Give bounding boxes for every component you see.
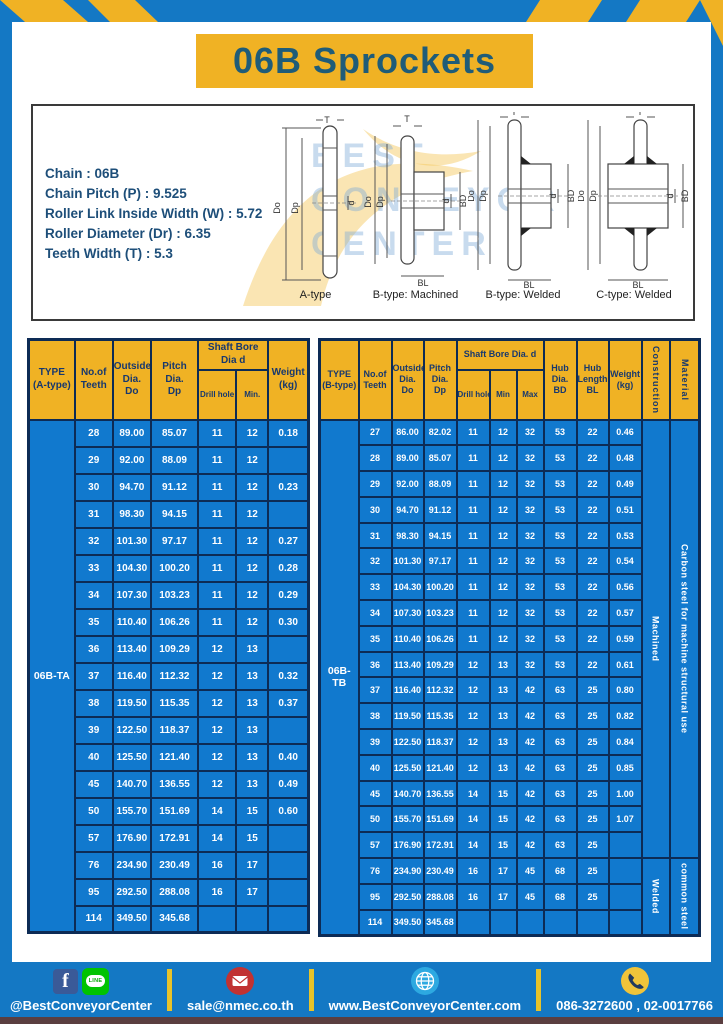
table-cell: 119.50 bbox=[392, 703, 424, 729]
table-cell: 39 bbox=[75, 717, 113, 744]
table-cell: 119.50 bbox=[113, 690, 151, 717]
table-cell: 22 bbox=[577, 600, 609, 626]
table-cell: 12 bbox=[236, 555, 268, 582]
catalog-page: 06B Sprockets BEST CONVEYOR CENTER Chain… bbox=[0, 0, 723, 1024]
table-cell: 101.30 bbox=[392, 548, 424, 574]
table-cell: 53 bbox=[544, 574, 577, 600]
table-cell: 234.90 bbox=[392, 858, 424, 884]
table-cell: 12 bbox=[490, 548, 517, 574]
table-cell: 172.91 bbox=[424, 832, 457, 858]
col-header-pitch-dia: PitchDia.Dp bbox=[424, 340, 457, 420]
table-cell: 172.91 bbox=[151, 825, 198, 852]
table-cell: 29 bbox=[75, 447, 113, 474]
table-cell: 12 bbox=[198, 636, 236, 663]
material-cell: common steel bbox=[670, 858, 700, 935]
table-cell: 92.00 bbox=[113, 447, 151, 474]
table-cell: 16 bbox=[457, 858, 490, 884]
table-cell: 122.50 bbox=[113, 717, 151, 744]
table-cell: 45 bbox=[75, 771, 113, 798]
col-header-outside-dia: OutsideDia.Do bbox=[392, 340, 424, 420]
table-cell: 45 bbox=[517, 858, 544, 884]
table-cell: 95 bbox=[359, 884, 392, 910]
table-cell: 42 bbox=[517, 729, 544, 755]
table-cell: 17 bbox=[490, 884, 517, 910]
table-cell: 12 bbox=[236, 474, 268, 501]
table-cell: 14 bbox=[198, 825, 236, 852]
svg-text:d: d bbox=[346, 200, 356, 205]
table-cell: 88.09 bbox=[424, 471, 457, 497]
spec-line: Chain Pitch (P) : 9.525 bbox=[45, 184, 262, 204]
table-cell: 0.54 bbox=[609, 548, 642, 574]
col-header-construction: Construction bbox=[642, 340, 670, 420]
table-cell: 14 bbox=[457, 806, 490, 832]
table-cell: 121.40 bbox=[151, 744, 198, 771]
table-cell: 0.23 bbox=[268, 474, 308, 501]
table-cell: 11 bbox=[457, 626, 490, 652]
facebook-icon[interactable]: f bbox=[53, 969, 78, 994]
table-cell: 349.50 bbox=[113, 906, 151, 933]
table-cell: 32 bbox=[517, 600, 544, 626]
table-cell: 53 bbox=[544, 445, 577, 471]
table-cell bbox=[198, 906, 236, 933]
table-cell: 12 bbox=[236, 420, 268, 447]
table-cell: 113.40 bbox=[392, 652, 424, 678]
table-cell: 11 bbox=[198, 528, 236, 555]
col-header-weight: Weight(kg) bbox=[268, 340, 308, 420]
table-cell: 32 bbox=[517, 445, 544, 471]
page-content: 06B Sprockets BEST CONVEYOR CENTER Chain… bbox=[12, 22, 711, 962]
table-cell: 12 bbox=[490, 420, 517, 446]
table-cell: 63 bbox=[544, 806, 577, 832]
email-address: sale@nmec.co.th bbox=[187, 998, 294, 1013]
svg-text:BL: BL bbox=[632, 280, 643, 288]
col-header-max: Max bbox=[517, 370, 544, 420]
table-cell: 34 bbox=[359, 600, 392, 626]
email-icon[interactable] bbox=[225, 966, 255, 996]
table-cell: 98.30 bbox=[392, 523, 424, 549]
table-cell: 32 bbox=[75, 528, 113, 555]
table-cell: 13 bbox=[490, 755, 517, 781]
table-cell: 22 bbox=[577, 548, 609, 574]
table-cell: 25 bbox=[577, 884, 609, 910]
table-cell: 76 bbox=[359, 858, 392, 884]
table-cell bbox=[268, 906, 308, 933]
table-cell: 155.70 bbox=[113, 798, 151, 825]
table-cell: 22 bbox=[577, 626, 609, 652]
table-cell: 63 bbox=[544, 677, 577, 703]
table-cell: 110.40 bbox=[113, 609, 151, 636]
table-cell: 86.00 bbox=[392, 420, 424, 446]
table-cell: 12 bbox=[198, 717, 236, 744]
table-cell: 14 bbox=[457, 832, 490, 858]
table-cell: 53 bbox=[544, 420, 577, 446]
table-cell: 112.32 bbox=[424, 677, 457, 703]
svg-text:Dp: Dp bbox=[290, 202, 300, 214]
table-cell bbox=[268, 825, 308, 852]
table-cell: 36 bbox=[359, 652, 392, 678]
table-cell: 11 bbox=[457, 600, 490, 626]
svg-text:BL: BL bbox=[523, 280, 534, 288]
table-cell: 12 bbox=[490, 600, 517, 626]
table-cell: 155.70 bbox=[392, 806, 424, 832]
table-cell: 38 bbox=[75, 690, 113, 717]
svg-text:T: T bbox=[511, 112, 517, 117]
figure-caption: B-type: Welded bbox=[468, 289, 578, 301]
table-cell: 34 bbox=[75, 582, 113, 609]
table-cell bbox=[268, 852, 308, 879]
svg-text:T: T bbox=[404, 114, 410, 124]
table-cell: 349.50 bbox=[392, 910, 424, 936]
table-cell: 42 bbox=[517, 781, 544, 807]
col-header-min: Min bbox=[490, 370, 517, 420]
table-cell: 0.60 bbox=[268, 798, 308, 825]
table-cell bbox=[609, 884, 642, 910]
a-type-table: TYPE(A-type) No.ofTeeth OutsideDia.Do Pi… bbox=[27, 338, 310, 934]
bottom-strip bbox=[0, 1017, 723, 1024]
table-cell: 11 bbox=[457, 548, 490, 574]
table-cell: 68 bbox=[544, 884, 577, 910]
col-header-teeth: No.ofTeeth bbox=[359, 340, 392, 420]
sprocket-c-type-welded-diagram: T Do Dp bbox=[578, 112, 690, 301]
table-cell: 94.15 bbox=[151, 501, 198, 528]
table-cell: 25 bbox=[577, 858, 609, 884]
table-cell: 12 bbox=[198, 663, 236, 690]
table-cell: 13 bbox=[236, 771, 268, 798]
table-cell: 37 bbox=[359, 677, 392, 703]
table-cell: 1.00 bbox=[609, 781, 642, 807]
table-cell: 40 bbox=[359, 755, 392, 781]
table-cell: 16 bbox=[198, 879, 236, 906]
table-cell: 125.50 bbox=[113, 744, 151, 771]
table-cell: 101.30 bbox=[113, 528, 151, 555]
table-cell: 92.00 bbox=[392, 471, 424, 497]
col-header-outside-dia: OutsideDia.Do bbox=[113, 340, 151, 420]
table-cell: 104.30 bbox=[113, 555, 151, 582]
svg-text:Dp: Dp bbox=[478, 190, 488, 202]
footer-social-section: f LINE @BestConveyorCenter bbox=[10, 966, 152, 1013]
svg-text:T: T bbox=[324, 115, 330, 125]
table-cell: 345.68 bbox=[151, 906, 198, 933]
table-cell: 12 bbox=[236, 447, 268, 474]
table-cell: 140.70 bbox=[113, 771, 151, 798]
globe-icon[interactable] bbox=[410, 966, 440, 996]
table-cell: 40 bbox=[75, 744, 113, 771]
table-cell bbox=[268, 879, 308, 906]
table-cell: 53 bbox=[544, 497, 577, 523]
table-cell: 32 bbox=[517, 574, 544, 600]
col-header-type: TYPE(B-type) bbox=[320, 340, 359, 420]
svg-text:BD: BD bbox=[566, 189, 576, 202]
social-handle: @BestConveyorCenter bbox=[10, 998, 152, 1013]
table-cell: 100.20 bbox=[424, 574, 457, 600]
table-cell: 22 bbox=[577, 497, 609, 523]
table-cell: 14 bbox=[457, 781, 490, 807]
spec-line: Chain : 06B bbox=[45, 164, 262, 184]
table-cell: 53 bbox=[544, 523, 577, 549]
table-row: 06B-TB2786.0082.0211123253220.46Machined… bbox=[320, 420, 700, 446]
table-cell: 118.37 bbox=[151, 717, 198, 744]
table-cell: 12 bbox=[490, 471, 517, 497]
table-cell: 13 bbox=[236, 744, 268, 771]
table-cell: 98.30 bbox=[113, 501, 151, 528]
table-cell: 22 bbox=[577, 420, 609, 446]
table-cell: 136.55 bbox=[151, 771, 198, 798]
table-cell: 0.80 bbox=[609, 677, 642, 703]
table-cell: 292.50 bbox=[392, 884, 424, 910]
table-cell: 12 bbox=[490, 574, 517, 600]
footer-divider bbox=[309, 969, 314, 1011]
table-cell bbox=[490, 910, 517, 936]
table-cell: 12 bbox=[457, 755, 490, 781]
table-cell: 57 bbox=[75, 825, 113, 852]
table-cell: 288.08 bbox=[424, 884, 457, 910]
table-cell: 32 bbox=[517, 548, 544, 574]
table-cell: 12 bbox=[198, 690, 236, 717]
b-type-table-body: 06B-TB2786.0082.0211123253220.46Machined… bbox=[320, 420, 700, 936]
table-cell: 50 bbox=[359, 806, 392, 832]
table-cell: 292.50 bbox=[113, 879, 151, 906]
sprocket-b-type-machined-diagram: T Do Dp d BD bbox=[363, 112, 468, 301]
table-cell: 0.29 bbox=[268, 582, 308, 609]
col-header-drill-hole: Drill hole bbox=[198, 370, 236, 420]
table-cell: 63 bbox=[544, 832, 577, 858]
table-cell: 15 bbox=[236, 798, 268, 825]
table-cell: 11 bbox=[198, 609, 236, 636]
table-cell: 53 bbox=[544, 471, 577, 497]
spec-line: Roller Diameter (Dr) : 6.35 bbox=[45, 224, 262, 244]
table-cell: 53 bbox=[544, 548, 577, 574]
col-header-shaft-bore: Shaft Bore Dia. d bbox=[457, 340, 544, 370]
table-cell: 12 bbox=[457, 652, 490, 678]
table-cell: 118.37 bbox=[424, 729, 457, 755]
phone-icon[interactable] bbox=[620, 966, 650, 996]
b-type-table: TYPE(B-type) No.ofTeeth OutsideDia.Do Pi… bbox=[318, 338, 701, 937]
table-cell: 13 bbox=[490, 652, 517, 678]
footer-divider bbox=[167, 969, 172, 1011]
table-cell: 63 bbox=[544, 729, 577, 755]
table-cell: 53 bbox=[544, 600, 577, 626]
table-cell: 11 bbox=[198, 501, 236, 528]
table-cell: 288.08 bbox=[151, 879, 198, 906]
table-cell: 22 bbox=[577, 471, 609, 497]
footer-website-section: www.BestConveyorCenter.com bbox=[329, 966, 521, 1013]
table-cell: 76 bbox=[75, 852, 113, 879]
table-cell bbox=[609, 858, 642, 884]
table-cell: 42 bbox=[517, 755, 544, 781]
svg-text:T: T bbox=[637, 112, 643, 117]
table-cell: 63 bbox=[544, 703, 577, 729]
table-cell: 100.20 bbox=[151, 555, 198, 582]
table-cell: 0.27 bbox=[268, 528, 308, 555]
table-cell: 13 bbox=[236, 636, 268, 663]
table-cell: 95 bbox=[75, 879, 113, 906]
table-cell: 345.68 bbox=[424, 910, 457, 936]
table-cell: 121.40 bbox=[424, 755, 457, 781]
table-cell: 11 bbox=[457, 523, 490, 549]
col-header-weight: Weight(kg) bbox=[609, 340, 642, 420]
table-cell: 136.55 bbox=[424, 781, 457, 807]
table-cell: 11 bbox=[198, 582, 236, 609]
table-cell bbox=[268, 717, 308, 744]
table-cell: 12 bbox=[198, 771, 236, 798]
table-cell: 37 bbox=[75, 663, 113, 690]
table-cell: 33 bbox=[75, 555, 113, 582]
footer-divider bbox=[536, 969, 541, 1011]
sprocket-figures: T Do Dp d bbox=[268, 112, 687, 317]
figure-caption: A-type bbox=[268, 289, 363, 301]
table-cell: 32 bbox=[517, 523, 544, 549]
svg-text:Do: Do bbox=[363, 196, 373, 208]
diagram-panel: BEST CONVEYOR CENTER Chain : 06B Chain P… bbox=[31, 104, 695, 321]
type-cell: 06B-TA bbox=[29, 420, 75, 933]
table-cell: 151.69 bbox=[424, 806, 457, 832]
table-cell: 151.69 bbox=[151, 798, 198, 825]
table-cell: 42 bbox=[517, 703, 544, 729]
svg-text:d: d bbox=[548, 193, 558, 198]
table-cell: 89.00 bbox=[392, 445, 424, 471]
spec-line: Teeth Width (T) : 5.3 bbox=[45, 244, 262, 264]
table-cell: 57 bbox=[359, 832, 392, 858]
construction-cell: Welded bbox=[642, 858, 670, 935]
table-row: 06B-TA2889.0085.0711120.18 bbox=[29, 420, 309, 447]
table-cell: 122.50 bbox=[392, 729, 424, 755]
table-cell: 94.70 bbox=[392, 497, 424, 523]
figure-caption: C-type: Welded bbox=[578, 289, 690, 301]
table-cell: 82.02 bbox=[424, 420, 457, 446]
table-cell: 32 bbox=[517, 471, 544, 497]
table-cell: 36 bbox=[75, 636, 113, 663]
material-cell: Carbon steel for machine structural use bbox=[670, 420, 700, 859]
table-cell: 25 bbox=[577, 832, 609, 858]
table-cell: 39 bbox=[359, 729, 392, 755]
table-cell bbox=[609, 910, 642, 936]
construction-cell: Machined bbox=[642, 420, 670, 859]
table-cell: 28 bbox=[75, 420, 113, 447]
table-cell: 22 bbox=[577, 652, 609, 678]
a-type-table-body: 06B-TA2889.0085.0711120.182992.0088.0911… bbox=[29, 420, 309, 933]
table-cell: 25 bbox=[577, 781, 609, 807]
type-cell: 06B-TB bbox=[320, 420, 359, 936]
svg-text:d: d bbox=[665, 193, 675, 198]
table-cell: 0.46 bbox=[609, 420, 642, 446]
col-header-teeth: No.ofTeeth bbox=[75, 340, 113, 420]
table-cell: 13 bbox=[490, 729, 517, 755]
table-cell: 85.07 bbox=[424, 445, 457, 471]
table-cell: 35 bbox=[359, 626, 392, 652]
table-cell: 12 bbox=[236, 582, 268, 609]
footer-phone-section: 086-3272600 , 02-0017766 bbox=[556, 966, 713, 1013]
svg-text:d: d bbox=[441, 198, 451, 203]
table-cell: 25 bbox=[577, 806, 609, 832]
table-cell: 16 bbox=[198, 852, 236, 879]
table-cell: 12 bbox=[198, 744, 236, 771]
table-cell: 17 bbox=[236, 879, 268, 906]
line-icon[interactable]: LINE bbox=[82, 968, 109, 995]
table-cell: 103.23 bbox=[424, 600, 457, 626]
table-cell bbox=[577, 910, 609, 936]
table-cell: 114 bbox=[359, 910, 392, 936]
col-header-material: Material bbox=[670, 340, 700, 420]
svg-text:Do: Do bbox=[468, 190, 476, 202]
table-cell: 68 bbox=[544, 858, 577, 884]
table-cell bbox=[268, 447, 308, 474]
table-cell: 12 bbox=[457, 677, 490, 703]
table-cell: 15 bbox=[236, 825, 268, 852]
table-cell: 0.57 bbox=[609, 600, 642, 626]
table-cell: 42 bbox=[517, 677, 544, 703]
table-cell: 16 bbox=[457, 884, 490, 910]
table-cell: 140.70 bbox=[392, 781, 424, 807]
table-cell: 116.40 bbox=[113, 663, 151, 690]
svg-text:BD: BD bbox=[680, 189, 690, 202]
table-cell: 12 bbox=[490, 523, 517, 549]
table-cell: 22 bbox=[577, 523, 609, 549]
table-cell: 0.59 bbox=[609, 626, 642, 652]
table-cell: 32 bbox=[359, 548, 392, 574]
table-cell: 15 bbox=[490, 832, 517, 858]
table-cell: 89.00 bbox=[113, 420, 151, 447]
table-cell: 0.18 bbox=[268, 420, 308, 447]
table-cell: 22 bbox=[577, 574, 609, 600]
table-cell: 91.12 bbox=[424, 497, 457, 523]
col-header-hub-length: HubLengthBL bbox=[577, 340, 609, 420]
col-header-pitch-dia: Pitch Dia.Dp bbox=[151, 340, 198, 420]
table-cell: 27 bbox=[359, 420, 392, 446]
table-cell: 94.15 bbox=[424, 523, 457, 549]
table-cell: 42 bbox=[517, 832, 544, 858]
table-cell: 11 bbox=[198, 420, 236, 447]
table-cell: 15 bbox=[490, 806, 517, 832]
table-cell: 0.40 bbox=[268, 744, 308, 771]
table-cell: 25 bbox=[577, 755, 609, 781]
table-cell: 0.49 bbox=[609, 471, 642, 497]
table-cell: 94.70 bbox=[113, 474, 151, 501]
table-cell: 38 bbox=[359, 703, 392, 729]
table-cell: 0.28 bbox=[268, 555, 308, 582]
col-header-min: Min. bbox=[236, 370, 268, 420]
svg-text:Do: Do bbox=[272, 202, 282, 214]
table-cell: 25 bbox=[577, 703, 609, 729]
table-cell: 42 bbox=[517, 806, 544, 832]
a-type-table-header: TYPE(A-type) No.ofTeeth OutsideDia.Do Pi… bbox=[29, 340, 309, 420]
table-cell: 32 bbox=[517, 497, 544, 523]
table-cell: 12 bbox=[457, 703, 490, 729]
table-cell: 0.84 bbox=[609, 729, 642, 755]
table-cell: 125.50 bbox=[392, 755, 424, 781]
table-cell: 11 bbox=[198, 447, 236, 474]
table-cell: 30 bbox=[75, 474, 113, 501]
table-cell: 30 bbox=[359, 497, 392, 523]
table-cell: 113.40 bbox=[113, 636, 151, 663]
table-cell: 32 bbox=[517, 420, 544, 446]
col-header-shaft-bore: Shaft Bore Dia d bbox=[198, 340, 268, 370]
table-cell: 116.40 bbox=[392, 677, 424, 703]
table-cell bbox=[544, 910, 577, 936]
table-cell: 13 bbox=[490, 677, 517, 703]
table-cell: 11 bbox=[457, 420, 490, 446]
table-cell: 12 bbox=[490, 497, 517, 523]
table-cell: 107.30 bbox=[113, 582, 151, 609]
table-cell: 11 bbox=[457, 445, 490, 471]
table-cell: 12 bbox=[236, 501, 268, 528]
table-cell: 97.17 bbox=[424, 548, 457, 574]
footer: f LINE @BestConveyorCenter sale@nmec.co.… bbox=[0, 962, 723, 1017]
table-cell: 0.85 bbox=[609, 755, 642, 781]
col-header-type: TYPE(A-type) bbox=[29, 340, 75, 420]
table-cell: 11 bbox=[457, 574, 490, 600]
page-title: 06B Sprockets bbox=[196, 34, 533, 88]
table-cell: 1.07 bbox=[609, 806, 642, 832]
